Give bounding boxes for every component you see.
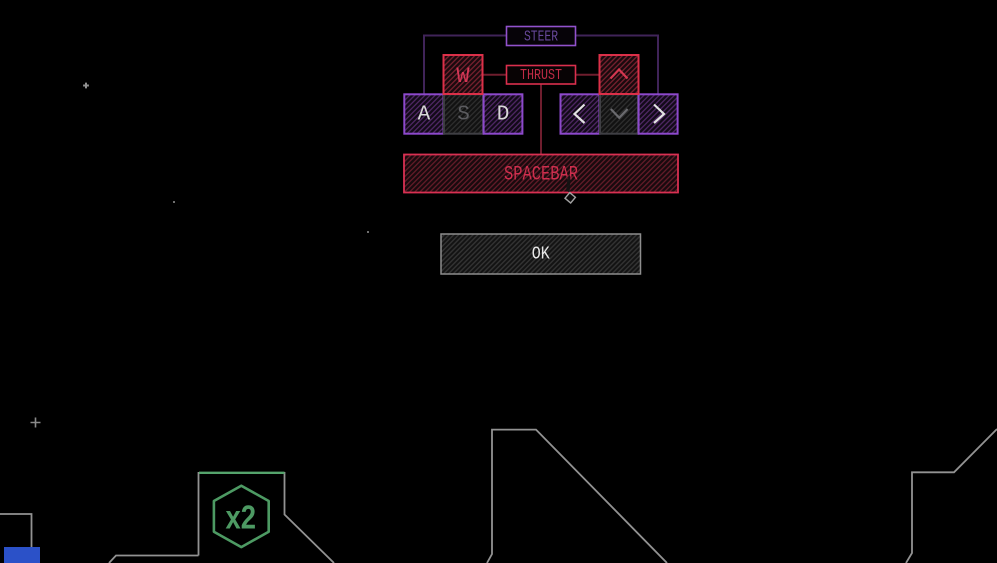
svg-text:D: D: [497, 104, 510, 127]
svg-text:STEER: STEER: [524, 28, 558, 45]
svg-text:x2: x2: [226, 499, 257, 536]
svg-text:S: S: [457, 104, 470, 127]
svg-text:W: W: [456, 64, 470, 89]
svg-text:THRUST: THRUST: [520, 67, 562, 84]
svg-text:OK: OK: [532, 245, 550, 265]
svg-text:A: A: [418, 104, 431, 127]
